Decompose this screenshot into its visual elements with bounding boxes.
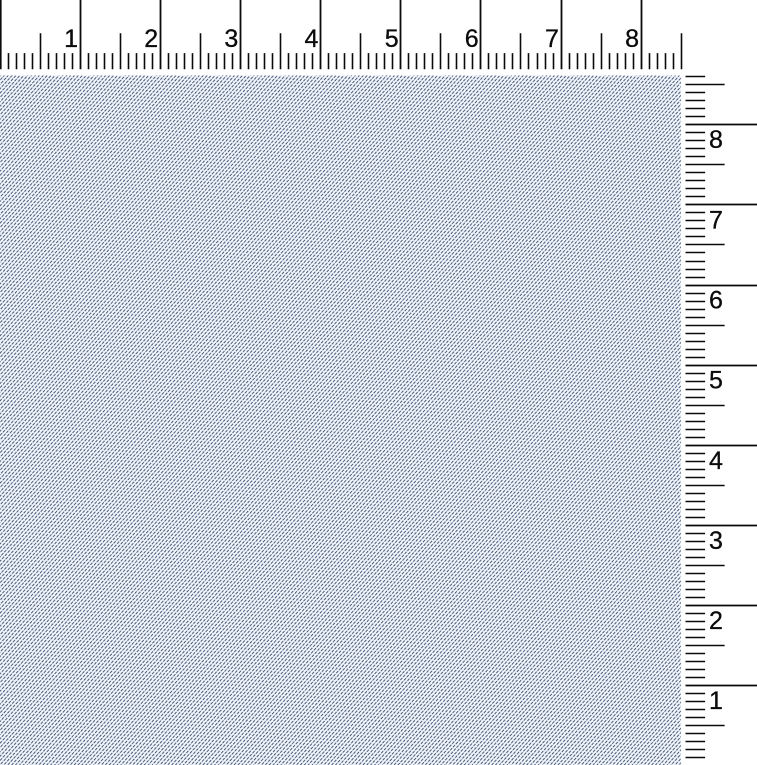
svg-text:3: 3: [709, 527, 723, 555]
svg-text:8: 8: [709, 126, 723, 154]
svg-text:7: 7: [545, 25, 559, 53]
svg-text:4: 4: [304, 25, 318, 53]
svg-text:2: 2: [144, 25, 158, 53]
svg-text:1: 1: [709, 687, 723, 715]
svg-text:5: 5: [709, 367, 723, 395]
svg-text:1: 1: [64, 25, 78, 53]
svg-text:6: 6: [709, 286, 723, 314]
svg-text:4: 4: [709, 447, 723, 475]
svg-text:2: 2: [709, 607, 723, 635]
svg-text:5: 5: [385, 25, 399, 53]
svg-text:8: 8: [625, 25, 639, 53]
svg-text:7: 7: [709, 206, 723, 234]
svg-text:3: 3: [224, 25, 238, 53]
svg-text:6: 6: [465, 25, 479, 53]
